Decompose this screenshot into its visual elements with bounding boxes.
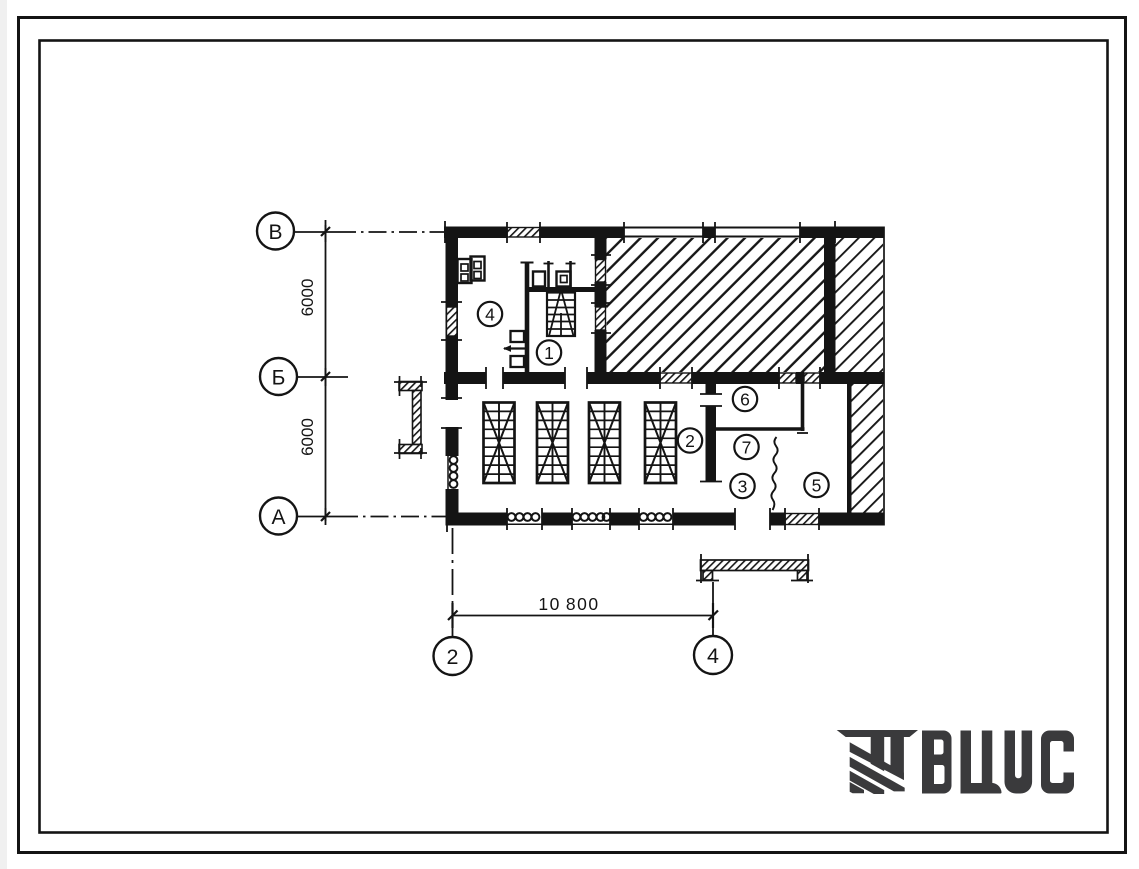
- svg-text:А: А: [271, 506, 285, 529]
- svg-text:3: 3: [738, 477, 748, 497]
- svg-text:5: 5: [812, 476, 822, 496]
- svg-text:6: 6: [740, 390, 750, 410]
- svg-text:10 800: 10 800: [538, 594, 599, 614]
- svg-text:Б: Б: [272, 367, 286, 390]
- svg-text:7: 7: [742, 438, 752, 458]
- svg-text:6000: 6000: [298, 279, 317, 317]
- svg-text:4: 4: [707, 644, 719, 668]
- svg-text:2: 2: [447, 645, 459, 669]
- svg-text:6000: 6000: [298, 418, 317, 456]
- svg-text:4: 4: [485, 305, 495, 325]
- svg-text:2: 2: [685, 431, 695, 451]
- svg-text:1: 1: [544, 343, 554, 363]
- svg-text:В: В: [268, 221, 282, 244]
